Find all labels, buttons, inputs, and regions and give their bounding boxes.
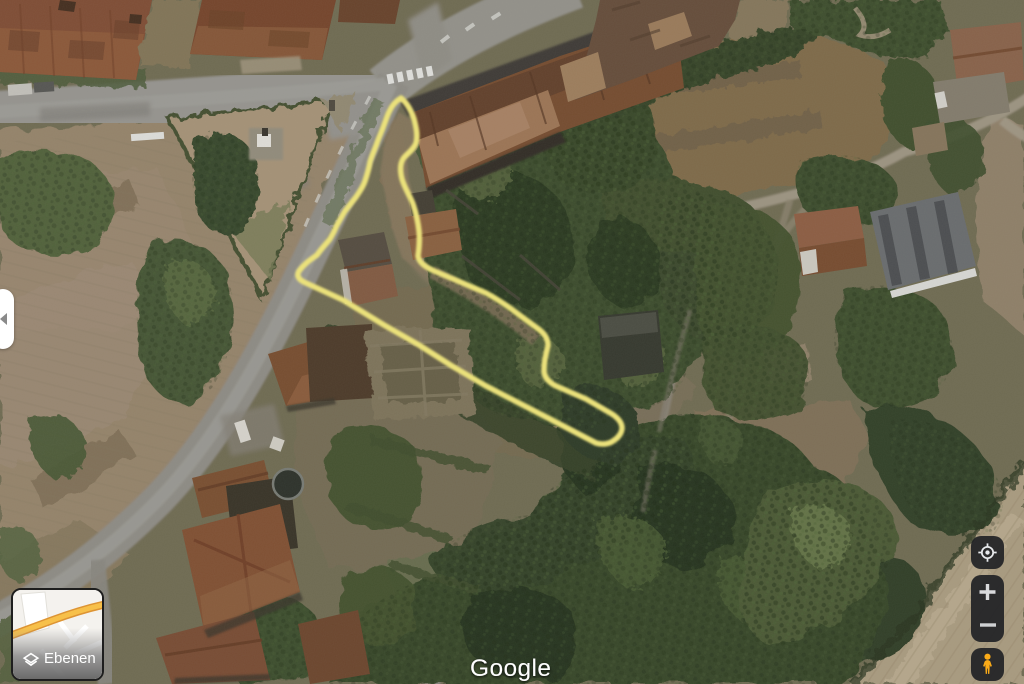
svg-text:Google: Google (470, 655, 551, 682)
